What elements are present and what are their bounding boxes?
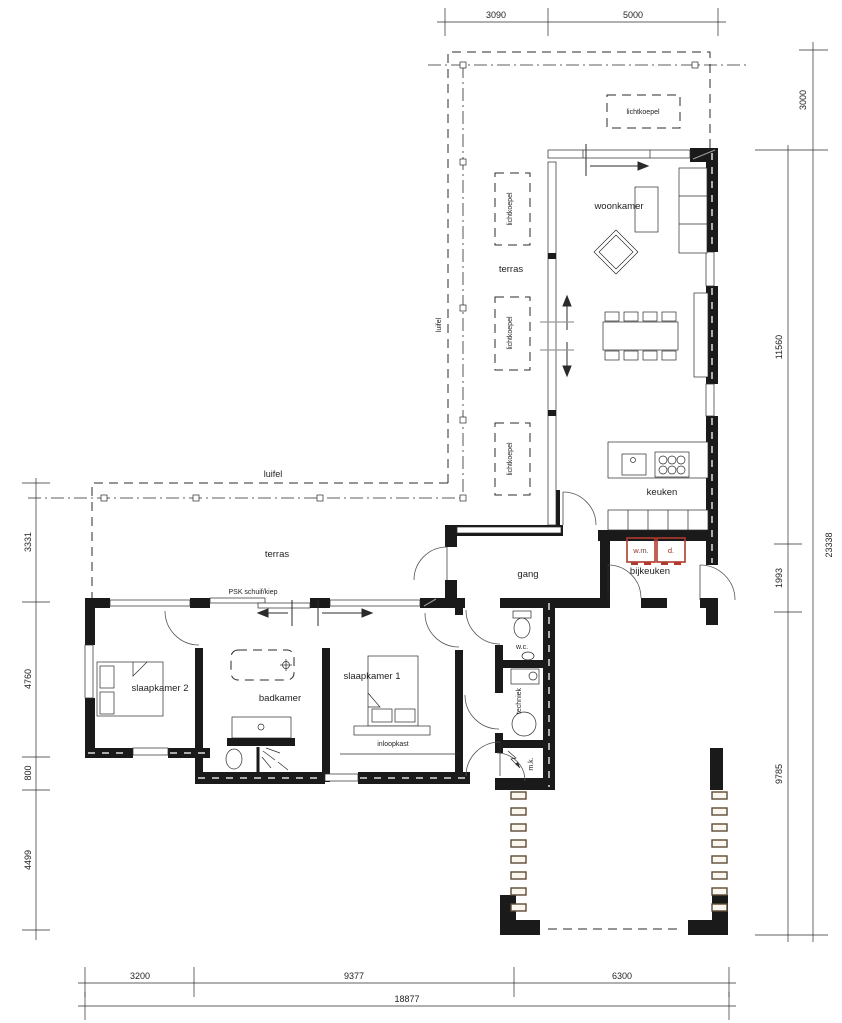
dining-table [603, 312, 678, 360]
shower [258, 747, 288, 775]
pillow [372, 709, 392, 722]
toilet-wc [513, 611, 534, 660]
label-slaapkamer2: slaapkamer 2 [131, 683, 188, 694]
window-bedroom-north-1 [110, 600, 190, 606]
floor-plan-drawing: 3090 5000 3000 23338 11560 1993 9785 333… [0, 0, 842, 1023]
label-techniek: techniek [516, 687, 523, 714]
dimension-right: 3000 23338 11560 1993 9785 [755, 42, 834, 942]
bathtub [231, 650, 294, 680]
window-gang-north [457, 527, 561, 533]
window-living-north [548, 150, 690, 158]
dim-right-11560: 11560 [774, 335, 784, 359]
dim-bottom-total: 18877 [394, 994, 419, 1004]
skylight-label-2: lichtkoepel [507, 316, 514, 350]
carport-posts [511, 792, 727, 911]
hand-basin [522, 652, 534, 660]
label-bijkeuken: bijkeuken [630, 566, 670, 577]
luifel-label-vertical: luifel [436, 317, 443, 332]
door-arc-techniek [465, 695, 499, 729]
dim-left-3331: 3331 [23, 532, 33, 552]
door-arc-wc [466, 610, 500, 644]
kitchen-counter [608, 442, 708, 478]
pillow [100, 692, 114, 714]
label-mk: m.k. [528, 757, 535, 770]
door-arc-mk [497, 753, 525, 781]
door-arc-gang-west [414, 547, 447, 580]
dim-left-800: 800 [23, 765, 33, 780]
label-slaapkamer1: slaapkamer 1 [343, 671, 400, 682]
luifel-label-horizontal: luifel [264, 469, 283, 479]
washing-machine-label: w.m. [632, 546, 648, 555]
door-arc-exit-south [466, 742, 500, 776]
vanity [227, 717, 295, 746]
dim-right-3000: 3000 [798, 90, 808, 110]
dimension-left: 3331 4760 800 4499 [22, 478, 50, 940]
dim-bottom-3200: 3200 [130, 971, 150, 981]
label-badkamer: badkamer [259, 693, 301, 704]
skylight-label-top: lichtkoepel [626, 109, 660, 116]
boiler-tank [512, 712, 536, 736]
dim-right-9785: 9785 [774, 764, 784, 784]
label-keuken: keuken [647, 487, 678, 498]
door-arc-slaapkamer1 [425, 613, 459, 647]
bed-headboard [354, 726, 430, 735]
label-inloopkast: inloopkast [377, 741, 409, 748]
skylight-label-1: lichtkoepel [507, 192, 514, 226]
walls [85, 148, 728, 935]
dim-right-23338: 23338 [824, 532, 834, 557]
canopy-posts [101, 62, 698, 501]
label-gang: gang [517, 569, 538, 580]
slide-arrows [258, 144, 648, 626]
floor-plan-canvas: 3090 5000 3000 23338 11560 1993 9785 333… [0, 0, 842, 1023]
sliding-door-psk-inner [258, 603, 310, 608]
dim-top-2: 5000 [623, 10, 643, 20]
window-slaapkamer2-west [85, 645, 93, 698]
dim-left-4760: 4760 [23, 669, 33, 689]
label-terras-top: terras [499, 264, 524, 275]
bed-slaapkamer1 [354, 656, 430, 735]
pillow [395, 709, 415, 722]
dim-bottom-9377: 9377 [344, 971, 364, 981]
dim-top-1: 3090 [486, 10, 506, 20]
lounge-chair-diamond [594, 230, 638, 274]
dim-bottom-6300: 6300 [612, 971, 632, 981]
label-woonkamer: woonkamer [593, 201, 643, 212]
toilet-badkamer [226, 749, 242, 769]
sink [622, 454, 646, 475]
washing-machine: w.m. [627, 538, 655, 565]
dimension-top: 3090 5000 [437, 8, 726, 36]
window-slaapkamer1-south [325, 774, 358, 781]
door-arc-bijkeuken-right [700, 565, 735, 600]
kitchen-cabinet-row [608, 510, 708, 530]
dryer-label: d. [668, 546, 674, 555]
window-living-east-1 [706, 252, 714, 286]
label-wc: w.c. [515, 644, 528, 651]
sofa-cabinet [679, 168, 707, 253]
label-terras-left: terras [265, 549, 290, 560]
sliding-door-psk-outer [210, 598, 265, 603]
skylight-label-3: lichtkoepel [507, 442, 514, 476]
door-arc-slaapkamer2 [165, 611, 199, 645]
window-living-east-2 [706, 384, 714, 416]
window-living-west [548, 162, 556, 525]
dim-left-4499: 4499 [23, 850, 33, 870]
electric-meter-arrowhead [515, 762, 520, 768]
dryer: d. [657, 538, 685, 565]
dimension-bottom: 3200 9377 6300 18877 [78, 967, 736, 1020]
label-psk: PSK schuif/kiep [228, 589, 277, 596]
window-slaapkamer2-south [133, 748, 168, 755]
dim-right-1993: 1993 [774, 568, 784, 588]
door-arc-gang-north [563, 492, 596, 525]
wall-cabinet [694, 293, 708, 377]
window-bedroom-north-2 [330, 600, 420, 606]
carport-wall-stub [710, 748, 723, 790]
pillow [100, 666, 114, 688]
